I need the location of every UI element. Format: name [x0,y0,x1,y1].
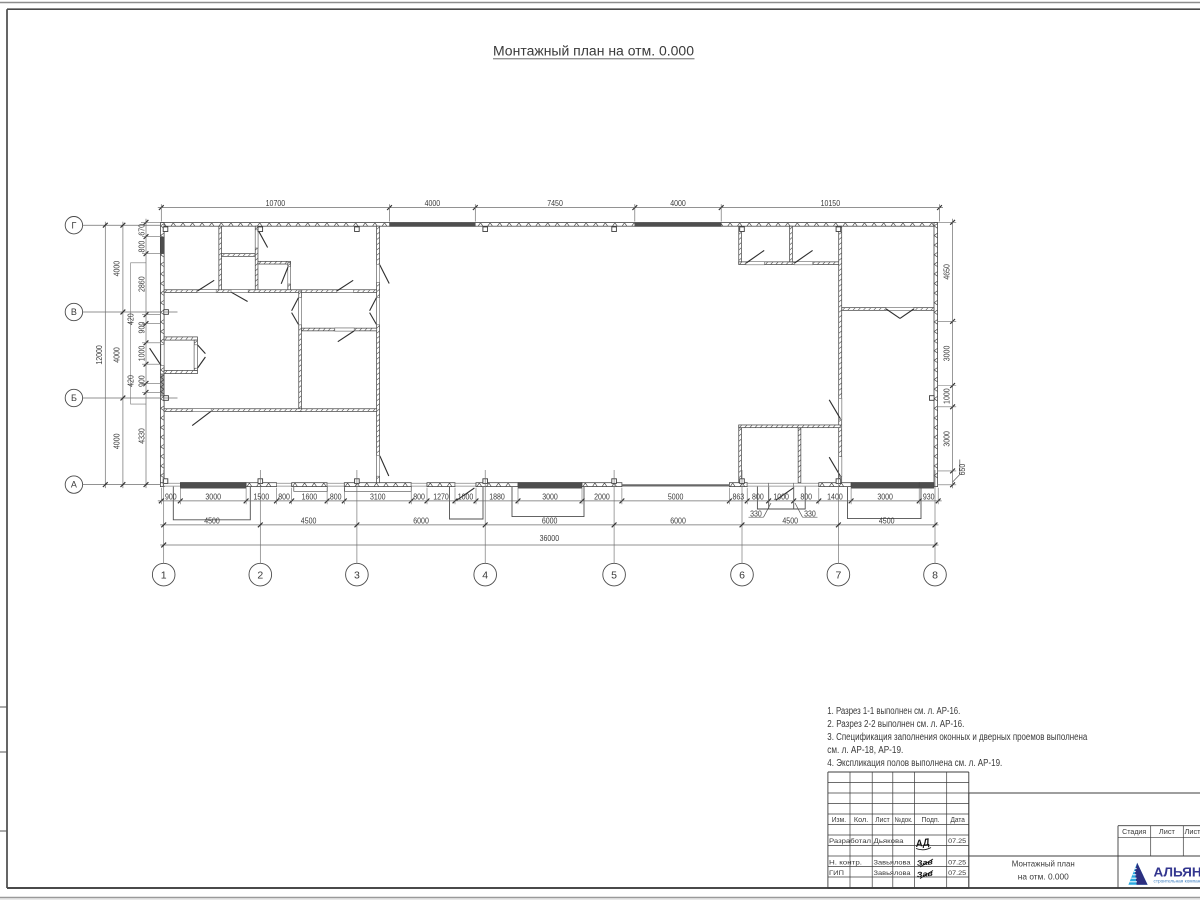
svg-text:900: 900 [138,375,147,387]
svg-text:7: 7 [835,570,841,582]
svg-text:863: 863 [732,492,744,502]
svg-text:Н. контр.: Н. контр. [829,860,862,867]
svg-text:Г: Г [71,220,76,230]
svg-text:1. Разрез 1-1 выполнен см. л.: 1. Разрез 1-1 выполнен см. л. АР-16. [827,706,960,717]
svg-text:10150: 10150 [821,198,841,208]
svg-text:3000: 3000 [542,492,558,502]
svg-text:Дата: Дата [951,817,965,824]
svg-text:№док.: №док. [895,817,913,824]
svg-text:10700: 10700 [266,198,286,208]
svg-text:4650: 4650 [941,264,951,280]
svg-text:6000: 6000 [670,516,686,526]
svg-text:4: 4 [482,570,488,582]
svg-text:1000: 1000 [458,492,474,502]
svg-text:4500: 4500 [782,516,798,526]
svg-text:4000: 4000 [112,433,122,449]
svg-text:3000: 3000 [877,492,893,502]
svg-text:1: 1 [161,570,167,582]
svg-text:420: 420 [126,313,135,325]
svg-text:800: 800 [138,240,147,252]
svg-text:Разработал: Разработал [829,837,871,845]
svg-text:800: 800 [413,492,425,502]
svg-text:строительная компания: строительная компания [1154,878,1200,883]
svg-text:4330: 4330 [138,428,147,444]
svg-text:Листов: Листов [1185,829,1200,836]
svg-text:800: 800 [800,492,812,502]
svg-text:6000: 6000 [542,516,558,526]
svg-text:6: 6 [739,570,745,582]
svg-text:4. Экспликация полов выполнена: 4. Экспликация полов выполнена см. л. АР… [827,758,1002,769]
svg-text:800: 800 [330,492,342,502]
svg-text:Зав: Зав [916,857,933,868]
svg-text:900: 900 [138,321,147,333]
svg-text:1270: 1270 [433,492,449,502]
svg-text:Дьякова: Дьякова [874,838,904,845]
svg-text:900: 900 [165,492,177,502]
svg-text:650: 650 [958,463,967,475]
svg-text:Зав: Зав [916,869,933,880]
svg-text:Лист: Лист [1159,829,1176,836]
svg-text:Монтажный план: Монтажный план [1012,859,1075,868]
svg-text:на отм. 0.000: на отм. 0.000 [1018,872,1069,881]
svg-text:07.25: 07.25 [948,838,966,845]
svg-text:1400: 1400 [827,492,843,502]
svg-text:4500: 4500 [204,516,220,526]
svg-text:5: 5 [611,570,617,582]
svg-text:3: 3 [354,570,360,582]
svg-text:7450: 7450 [547,198,563,208]
svg-text:07.25: 07.25 [948,870,966,877]
svg-text:36000: 36000 [540,533,560,543]
svg-text:1000: 1000 [941,388,951,404]
svg-text:Б: Б [71,393,77,403]
svg-text:670: 670 [138,224,147,236]
svg-text:6000: 6000 [413,516,429,526]
svg-text:2860: 2860 [138,276,147,292]
svg-text:4000: 4000 [670,198,686,208]
svg-text:4500: 4500 [301,516,317,526]
svg-text:Кол.: Кол. [854,817,868,824]
svg-text:3000: 3000 [941,431,951,447]
svg-text:5000: 5000 [668,492,684,502]
svg-text:Стадия: Стадия [1122,829,1146,836]
svg-text:Завьялова: Завьялова [874,860,911,867]
svg-text:3000: 3000 [941,345,951,361]
svg-text:В: В [71,307,77,317]
svg-text:3000: 3000 [205,492,221,502]
svg-text:420: 420 [126,375,135,387]
svg-text:1600: 1600 [302,492,318,502]
svg-text:800: 800 [278,492,290,502]
svg-text:800: 800 [752,492,764,502]
svg-text:Лист: Лист [875,817,890,824]
svg-text:1500: 1500 [254,492,270,502]
svg-text:Изм.: Изм. [832,817,846,824]
svg-text:4000: 4000 [425,198,441,208]
svg-text:Подп.: Подп. [922,817,940,824]
svg-text:Монтажный план на отм. 0.000: Монтажный план на отм. 0.000 [493,44,694,59]
svg-text:4000: 4000 [112,347,122,363]
svg-text:3100: 3100 [370,492,386,502]
svg-text:07.25: 07.25 [948,860,966,867]
svg-text:1000: 1000 [773,492,789,502]
svg-text:12000: 12000 [94,345,104,365]
svg-text:2. Разрез 2-2 выполнен см. л.: 2. Разрез 2-2 выполнен см. л. АР-16. [827,719,964,730]
svg-text:см. л. АР-18, АР-19.: см. л. АР-18, АР-19. [827,745,903,756]
svg-text:4000: 4000 [112,261,122,277]
svg-text:2: 2 [257,570,263,582]
svg-text:930: 930 [923,492,935,502]
svg-text:1880: 1880 [489,492,505,502]
svg-text:АД: АД [914,837,930,850]
svg-text:1000: 1000 [138,345,147,361]
svg-text:2000: 2000 [594,492,610,502]
svg-text:ГИП: ГИП [829,870,844,877]
svg-text:8: 8 [932,570,938,582]
svg-text:4500: 4500 [879,516,895,526]
svg-text:Завьялова: Завьялова [874,870,911,877]
svg-text:А: А [71,480,77,490]
svg-text:3. Спецификация заполнения око: 3. Спецификация заполнения оконных и две… [827,731,1087,743]
